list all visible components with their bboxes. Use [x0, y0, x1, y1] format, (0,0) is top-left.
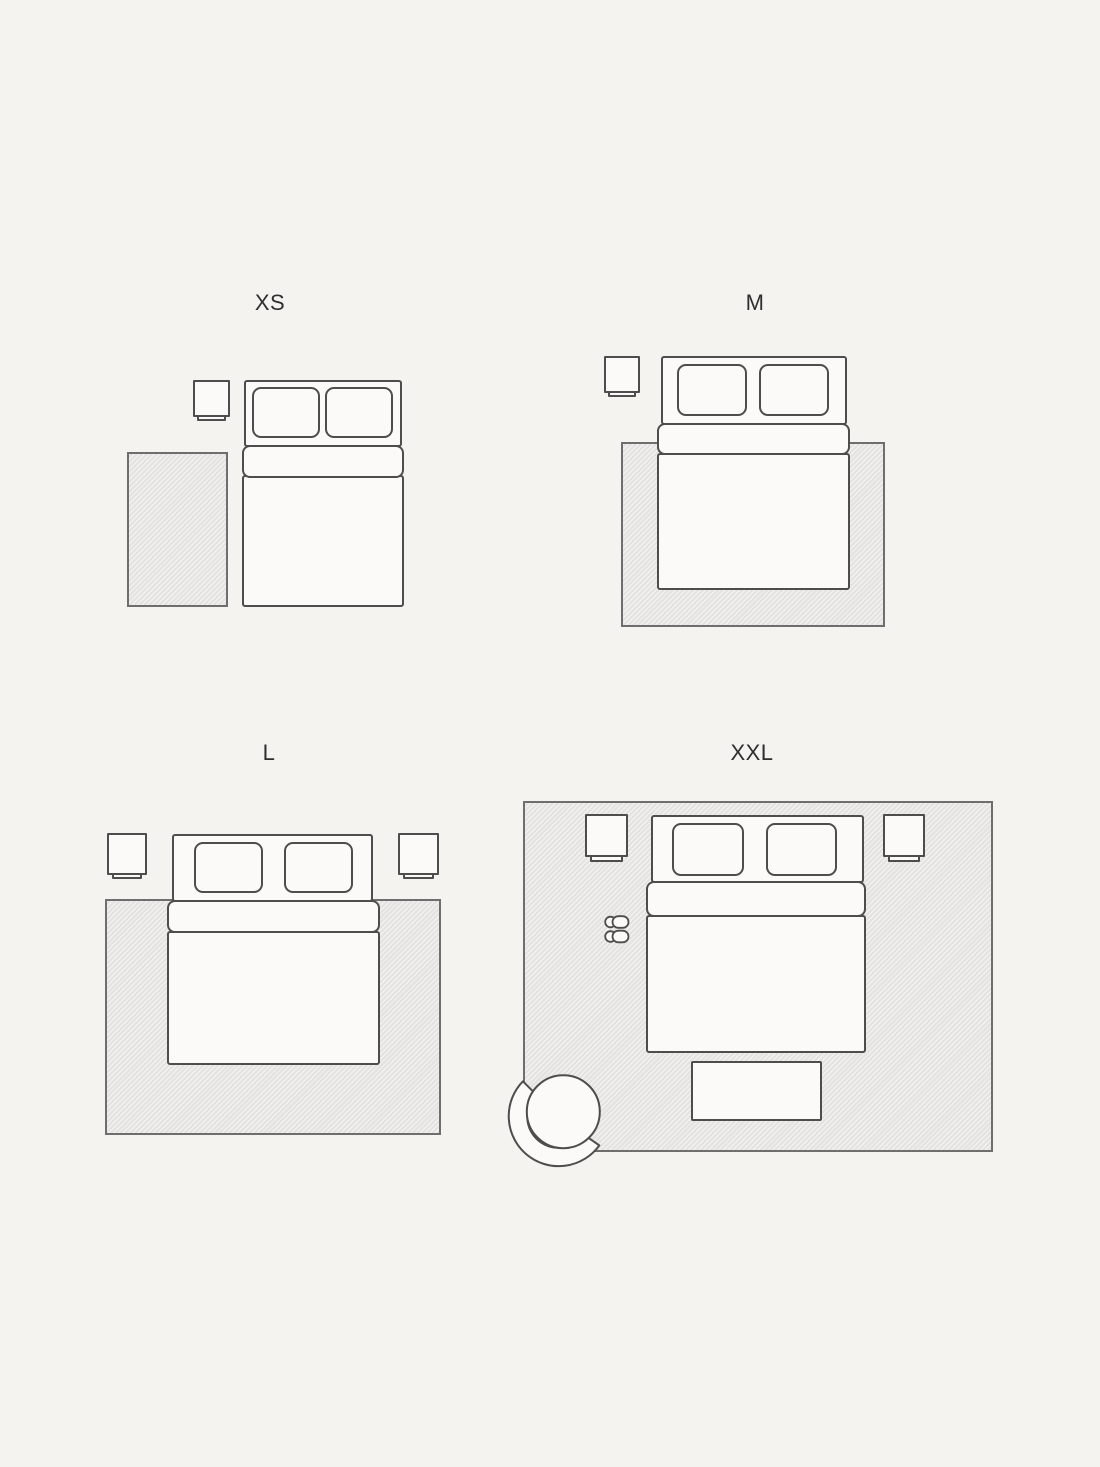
m-pillow-left — [677, 364, 747, 416]
l-bed-duvet — [167, 931, 380, 1065]
xs-rug — [127, 452, 228, 607]
xxl-slippers — [602, 913, 632, 946]
l-pillow-left — [194, 842, 263, 893]
xxl-bed-sheet-band — [646, 881, 866, 917]
l-bed-sheet-band — [167, 900, 380, 933]
xxl-pillow-right — [766, 823, 837, 876]
m-pillow-right — [759, 364, 829, 416]
size-panel-xxl: XXL — [0, 0, 1100, 1467]
l-pillow-right — [284, 842, 353, 893]
l-nightstand-right — [398, 833, 439, 875]
xxl-pillow-left — [672, 823, 744, 876]
m-nightstand — [604, 356, 640, 393]
size-label-xxl: XXL — [730, 742, 773, 764]
xs-pillow-left — [252, 387, 320, 438]
xxl-nightstand-right — [883, 814, 925, 857]
m-bed-duvet — [657, 453, 850, 590]
xs-bed-duvet — [242, 475, 404, 607]
xxl-nightstand-left — [585, 814, 628, 857]
xxl-armchair — [498, 1066, 618, 1186]
xxl-bed-duvet — [646, 915, 866, 1053]
l-nightstand-left — [107, 833, 147, 875]
rug-size-guide: XS M L XXL — [0, 0, 1100, 1467]
xs-nightstand — [193, 380, 230, 417]
xs-pillow-right — [325, 387, 393, 438]
m-bed-sheet-band — [657, 423, 850, 455]
xs-bed-sheet-band — [242, 445, 404, 478]
xxl-bench — [691, 1061, 822, 1121]
